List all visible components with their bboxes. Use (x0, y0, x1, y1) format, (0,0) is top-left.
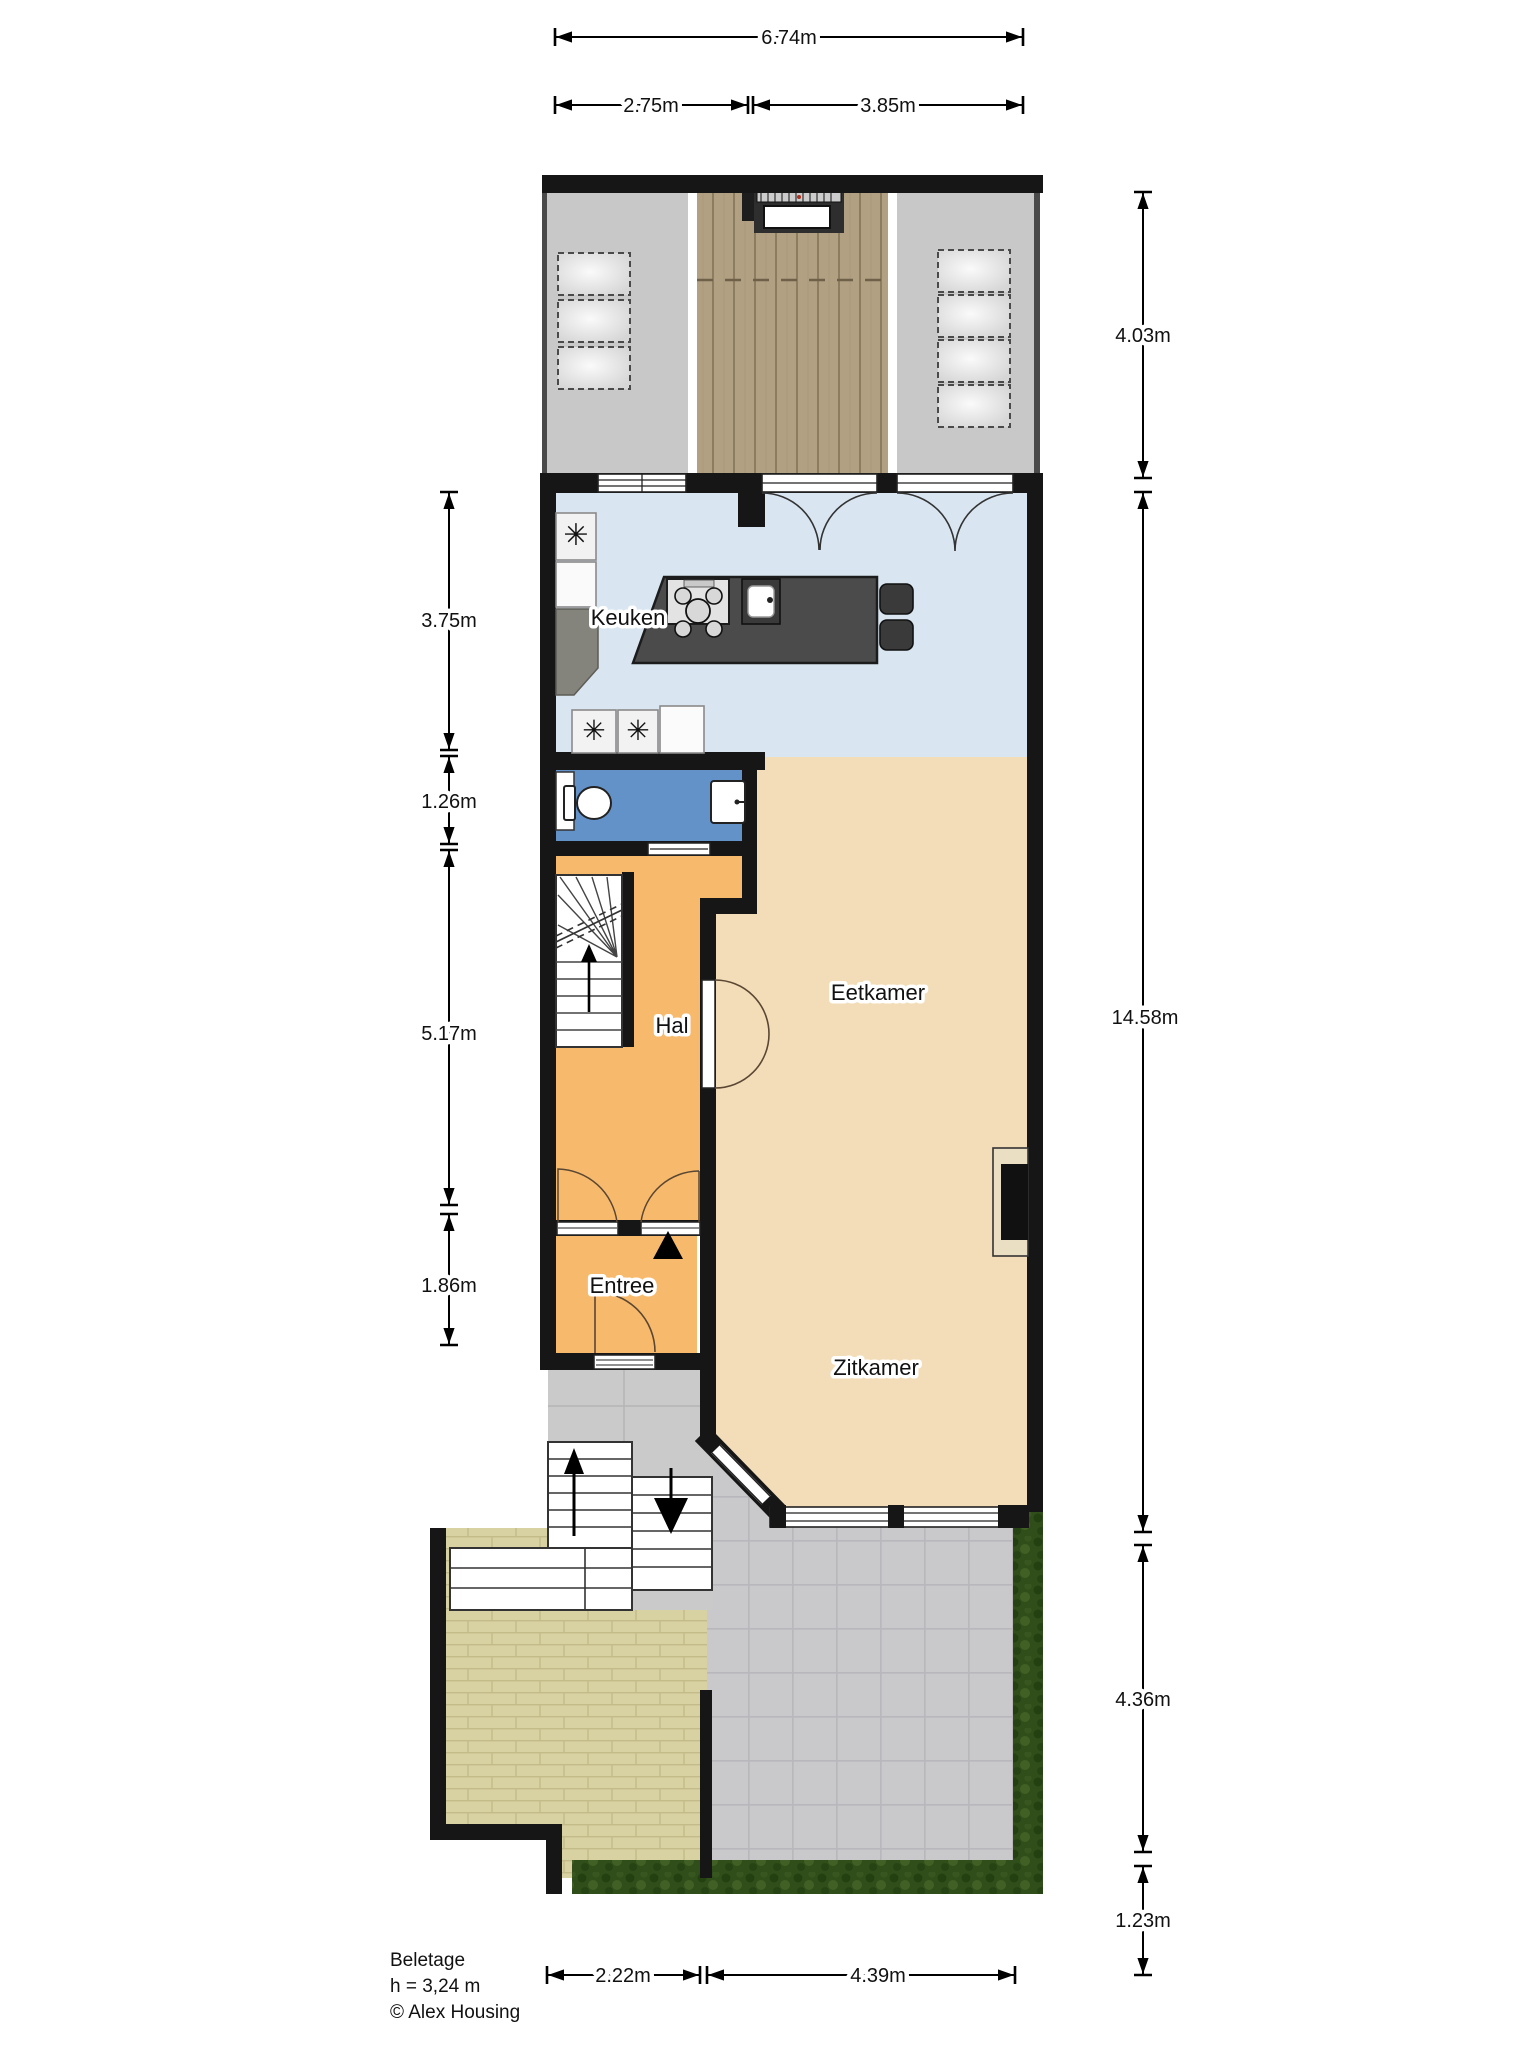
hedge-right (1013, 1502, 1043, 1894)
terrace-edge-left (542, 193, 547, 473)
toilet (564, 786, 611, 820)
label-dining: Eetkamer (831, 980, 925, 1005)
garden-wall-mid (700, 1690, 712, 1878)
wood-deck (697, 193, 888, 473)
garden-wall-step-h (430, 1824, 562, 1840)
footer: Beletage h = 3,24 m © Alex Housing (390, 1950, 520, 2023)
label-kitchen: Keuken (591, 605, 666, 630)
footer-copyright: © Alex Housing (390, 2002, 520, 2023)
roof-terrace (542, 175, 1043, 473)
dim-top-left: 2.75m (623, 95, 679, 117)
floorplan-drawing: ✳ ✳ ✳ (0, 0, 1536, 2048)
dim-left-kitchen: 3.75m (421, 610, 477, 632)
dim-top-total: 6.74m (761, 27, 817, 49)
wall-stair-side (622, 872, 634, 1047)
interior-stairs (556, 875, 622, 1047)
kitchen-island (633, 577, 877, 663)
dryer-icon: ✳ (626, 715, 649, 746)
label-living: Zitkamer (833, 1355, 919, 1380)
dim-bottom-left: 2.22m (595, 1965, 651, 1987)
dim-right-house: 14.58m (1112, 1007, 1179, 1029)
wall-toilet-right (742, 752, 757, 912)
appliance (556, 562, 596, 607)
dim-right-terrace: 4.03m (1115, 325, 1171, 347)
hedge-bottom (572, 1860, 1013, 1894)
deck-roof-hatch (742, 189, 844, 233)
toilet-sliding-door (648, 843, 710, 855)
sink (742, 579, 780, 624)
dim-top-right: 3.85m (860, 95, 916, 117)
wall-stub-kitchen (738, 493, 765, 527)
garden-wall-left (430, 1528, 446, 1840)
toilet-sink (711, 781, 745, 823)
stoop-and-exterior-stairs (450, 1370, 713, 1610)
footer-ceiling-height: h = 3,24 m (390, 1976, 480, 1997)
freezer-icon: ✳ (563, 519, 588, 552)
terrace-edge-right (1034, 193, 1040, 473)
dim-left-entry: 1.86m (421, 1275, 477, 1297)
appliance-row: ✳ ✳ (572, 706, 704, 753)
garden-wall-step-v (546, 1824, 562, 1894)
fireplace (993, 1148, 1028, 1256)
bay-front-window (770, 1505, 1029, 1528)
wall-entry-right (700, 1220, 716, 1443)
wall-right (1027, 473, 1043, 1512)
skylights-left (558, 253, 630, 389)
dim-bottom-right: 4.39m (850, 1965, 906, 1987)
terrace-top-wall (542, 175, 1043, 193)
label-entry: Entree (590, 1273, 655, 1298)
dim-right-garden: 4.36m (1115, 1689, 1171, 1711)
wall-kitchen-toilet (540, 752, 765, 770)
dim-right-hedge: 1.23m (1115, 1910, 1171, 1932)
window-kitchen (598, 474, 686, 492)
floorplan-page: ✳ ✳ ✳ (0, 0, 1536, 2048)
footer-floor-name: Beletage (390, 1950, 465, 1971)
dim-left-hall: 5.17m (421, 1023, 477, 1045)
label-hall: Hal (655, 1013, 688, 1038)
dim-left-toilet: 1.26m (421, 791, 477, 813)
washer-icon: ✳ (582, 715, 605, 746)
